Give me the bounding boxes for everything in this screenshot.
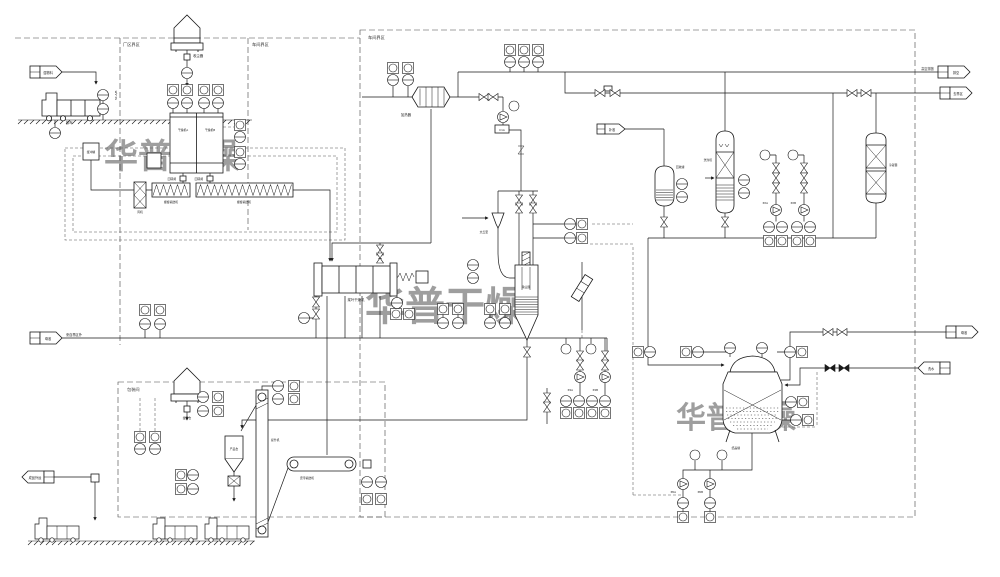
truck-wheel <box>168 538 172 542</box>
motor-icon <box>586 344 596 354</box>
motor-icon <box>788 150 798 160</box>
motor-icon <box>760 150 770 160</box>
pid-drawing-canvas: 华普干燥 华普干燥 华普干燥 <box>0 0 1000 577</box>
valve-icon <box>595 90 605 97</box>
boundary-label: 车间界区 <box>252 41 269 48</box>
belt-conveyor <box>287 457 356 471</box>
flag-label: 去界区 <box>953 91 963 96</box>
equip-label: 桨叶干燥机 <box>348 297 366 302</box>
equip-label: 缓存仓 <box>183 416 192 420</box>
flag-label: 排空 <box>953 70 959 75</box>
flag-product-ship: 成品外运 <box>22 471 54 483</box>
valve-icon <box>839 365 849 372</box>
flag-label: 母液 <box>961 330 968 335</box>
flag-label: 补液 <box>609 127 616 132</box>
valve-icon <box>530 203 537 213</box>
watermark-group: 华普干燥 华普干燥 华普干燥 <box>104 137 797 436</box>
crystallizer <box>723 356 782 442</box>
flag-to-battery: 去界区 <box>940 87 972 99</box>
pump-tag: P6A <box>671 490 676 494</box>
flag-makeup: 补液 <box>597 124 625 134</box>
truck-wheel <box>50 538 54 542</box>
pump-tag: P2A <box>763 201 768 205</box>
recovery-tank <box>655 166 674 206</box>
valve-icon <box>313 297 320 307</box>
equip-label: 回收罐 <box>676 165 685 169</box>
motor-icon <box>690 450 700 460</box>
valve-icon <box>773 163 780 173</box>
valve-icon <box>488 94 498 101</box>
flag-label: 湿物料 <box>43 70 53 75</box>
truck-wheel <box>241 538 245 542</box>
equip-label: 皮带输送机 <box>300 476 314 480</box>
pump-tag: P2B <box>791 201 796 205</box>
equip-label: 冷凝器 <box>889 163 898 167</box>
valve-icon <box>661 217 668 227</box>
truck-unloading <box>42 93 100 121</box>
valve-icon <box>544 402 551 412</box>
truck-wheel <box>71 538 75 542</box>
venturi-feeder <box>492 213 504 228</box>
flag-liquor-out: 母液 <box>946 326 978 338</box>
truck-wheel <box>39 538 43 542</box>
valve-icon <box>577 360 584 370</box>
shipping-trucks <box>35 518 249 542</box>
valve-icon <box>722 217 729 227</box>
equip-label: 螺旋输送机 <box>237 200 251 204</box>
flag-label: 洗水 <box>928 366 935 371</box>
battery-limit-lines <box>15 30 915 517</box>
valve-icon <box>516 203 523 213</box>
valve-icon <box>861 90 871 97</box>
twin-dryer <box>170 113 223 173</box>
silo-discharge-valve <box>184 54 190 60</box>
truck-wheel <box>189 538 193 542</box>
truck <box>205 518 249 542</box>
feed-box <box>147 153 161 168</box>
equip-label: 干燥机A <box>178 128 188 132</box>
rotary-valve-b <box>207 176 213 181</box>
truck <box>153 518 197 542</box>
pump-tag: P6B <box>698 490 703 494</box>
flag-note: 来自界区外 <box>66 332 83 337</box>
truck <box>35 518 79 542</box>
valve-icon <box>544 393 551 403</box>
boundary-label: 包装间 <box>127 386 140 393</box>
truck-cab <box>205 518 217 539</box>
pump-tag: P4A <box>568 388 573 392</box>
pump-tag: P4B <box>593 388 598 392</box>
valve-icon <box>377 253 384 263</box>
valve-icon <box>837 329 847 336</box>
truck-cab <box>153 518 165 539</box>
top-silo <box>171 15 203 52</box>
valve-icon <box>524 347 531 357</box>
truck-wheel <box>157 538 161 542</box>
flag-note: 高空排放 <box>921 66 935 71</box>
product-bin <box>225 436 243 486</box>
valve-icon <box>825 365 835 372</box>
valve-icon <box>823 329 833 336</box>
equip-label: 回转阀 <box>195 177 204 181</box>
truck-trailer <box>165 526 197 539</box>
flag-label: 母液 <box>45 336 52 341</box>
valve-icon <box>577 351 584 361</box>
valve-icon <box>602 360 609 370</box>
motor-icon <box>509 101 519 111</box>
equip-label: 提升机 <box>271 438 280 442</box>
valve-icon <box>773 183 780 193</box>
silo-discharge-valve <box>184 406 190 412</box>
truck-wheel <box>209 538 213 542</box>
truck-trailer <box>47 526 79 539</box>
equip-label: C1A <box>499 128 505 132</box>
screw-conveyors <box>152 183 293 197</box>
valve-icon <box>801 163 808 173</box>
equip-label: 收尘器 <box>193 53 204 58</box>
valve-symbols <box>313 90 872 413</box>
small-fan <box>134 182 146 208</box>
scrubber-column <box>716 131 734 213</box>
valve-icon <box>801 183 808 193</box>
equip-label: 文丘里 <box>480 230 489 234</box>
equip-label: 结晶罐 <box>732 446 741 450</box>
equipment-layer <box>35 15 886 542</box>
riser-tag: SC-A/B <box>114 90 118 100</box>
equip-label: 除尘器 <box>522 285 531 289</box>
valve-icon <box>801 173 808 183</box>
valve-icon <box>610 90 620 97</box>
flag-wet-feed: 湿物料 <box>30 66 62 78</box>
flag-label: 成品外运 <box>29 475 43 480</box>
condenser-column <box>866 133 886 203</box>
equip-label: 风机 <box>137 210 143 214</box>
equip-label: 缓冲罐 <box>87 150 96 154</box>
equip-label: 干燥机B <box>205 128 215 132</box>
valve-icon <box>847 90 857 97</box>
motor-icon <box>561 344 571 354</box>
truck-cab <box>35 518 47 539</box>
equip-label: 洗涤塔 <box>704 158 713 162</box>
boundary-label: 车间界区 <box>368 34 385 41</box>
junction-box <box>91 474 99 482</box>
equip-label: 加热器 <box>401 112 412 117</box>
truck-wheel <box>220 538 224 542</box>
air-heater <box>412 87 450 107</box>
valve-icon <box>602 351 609 361</box>
flag-wash-water: 洗水 <box>918 362 950 374</box>
motor-icon <box>717 450 727 460</box>
equip-label: 回转阀 <box>168 177 177 181</box>
valve-icon <box>313 309 320 319</box>
equip-label: 螺旋输送机 <box>164 200 178 204</box>
equip-label: 产品仓 <box>230 447 239 451</box>
equip-label: 卸车 <box>66 120 73 125</box>
rotary-valve-a <box>180 176 186 181</box>
truck-trailer <box>217 526 249 539</box>
conveyor-tag-box <box>363 460 371 468</box>
boundary-label: 厂区界区 <box>123 42 140 48</box>
valve-icon <box>479 94 489 101</box>
valve-icon <box>773 173 780 183</box>
pid-diagram: 华普干燥 华普干燥 华普干燥 <box>0 0 1000 577</box>
bucket-elevator <box>256 390 268 537</box>
